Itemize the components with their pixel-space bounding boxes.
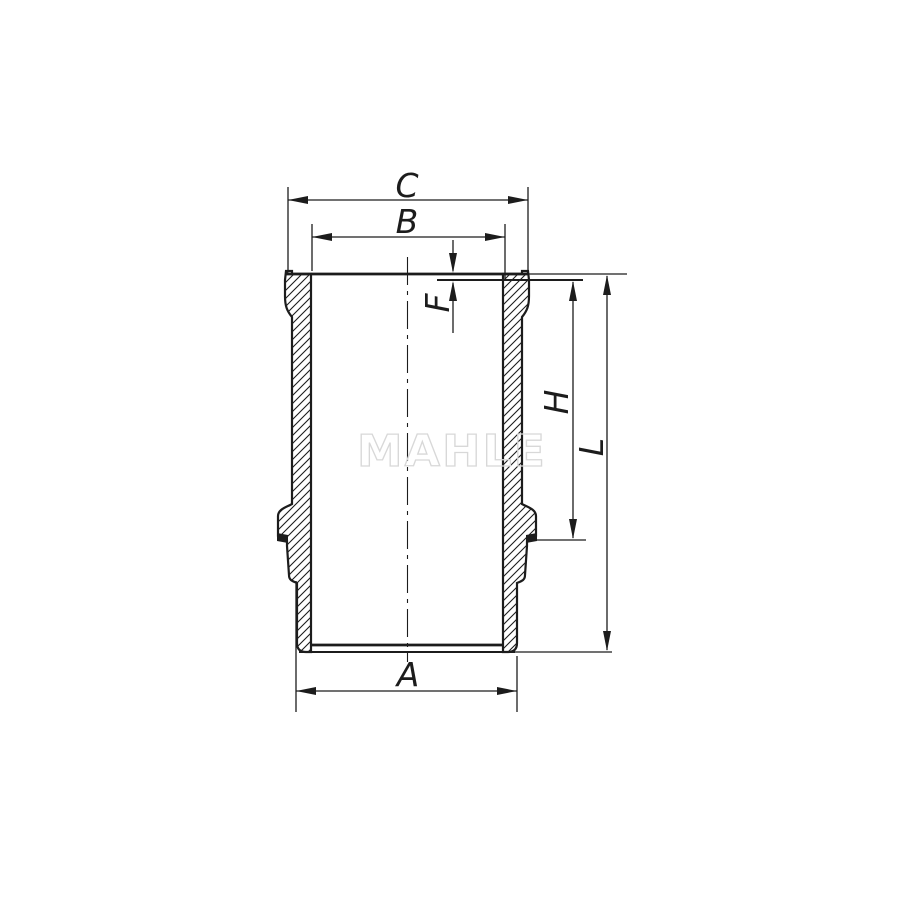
dimension-label-f: F [418, 292, 457, 312]
cylinder-liner-diagram: MAHLE C B F H L [0, 0, 900, 900]
dimension-label-h: H [537, 390, 576, 415]
dimension-b: B [312, 202, 505, 281]
dimension-label-c: C [395, 166, 418, 205]
dimension-h: H [531, 281, 586, 540]
mahle-watermark: MAHLE [357, 426, 547, 477]
dimension-label-l: L [572, 438, 611, 456]
dimension-label-a: A [395, 655, 420, 694]
dimension-f: F [418, 240, 457, 333]
technical-drawing: MAHLE C B F H L [0, 0, 900, 900]
dimension-l: L [572, 275, 611, 651]
dimension-label-b: B [396, 202, 419, 241]
dimension-a: A [296, 581, 517, 712]
liner-left-wall [278, 271, 311, 652]
